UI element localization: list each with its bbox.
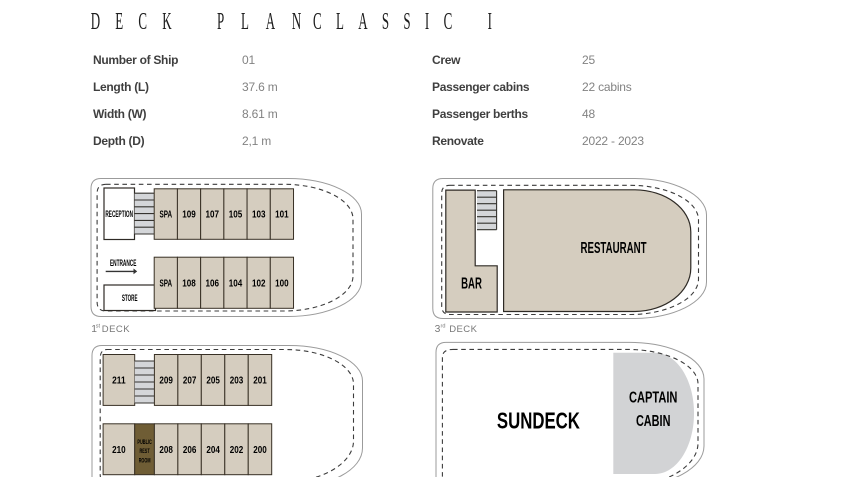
svg-text:37.6 m: 37.6 m — [242, 80, 278, 94]
svg-text:101: 101 — [275, 210, 289, 221]
svg-text:108: 108 — [182, 278, 196, 289]
svg-text:208: 208 — [159, 445, 173, 456]
svg-text:25: 25 — [582, 53, 595, 67]
svg-text:SUNDECK: SUNDECK — [497, 408, 580, 434]
svg-text:106: 106 — [206, 278, 220, 289]
svg-text:8.61 m: 8.61 m — [242, 107, 278, 121]
svg-text:I: I — [488, 9, 492, 35]
svg-text:48: 48 — [582, 107, 595, 121]
svg-text:200: 200 — [253, 445, 267, 456]
svg-text:Crew: Crew — [432, 53, 461, 67]
svg-text:Passenger berths: Passenger berths — [432, 107, 529, 121]
svg-text:ROOM: ROOM — [139, 459, 151, 465]
svg-text:201: 201 — [253, 376, 267, 387]
svg-text:206: 206 — [183, 445, 197, 456]
svg-text:105: 105 — [229, 210, 243, 221]
svg-text:CLASSIC: CLASSIC — [313, 9, 467, 35]
svg-text:203: 203 — [230, 376, 244, 387]
svg-text:209: 209 — [159, 376, 173, 387]
svg-text:205: 205 — [206, 376, 220, 387]
svg-text:204: 204 — [206, 445, 220, 456]
svg-text:202: 202 — [230, 445, 244, 456]
svg-text:103: 103 — [252, 210, 266, 221]
svg-text:rd: rd — [441, 323, 446, 329]
svg-text:100: 100 — [275, 278, 289, 289]
svg-text:DECK: DECK — [449, 324, 477, 335]
svg-text:PUBLIC: PUBLIC — [137, 440, 152, 446]
svg-text:SPA: SPA — [160, 278, 173, 289]
svg-text:DECK: DECK — [102, 324, 130, 335]
svg-text:211: 211 — [112, 376, 126, 387]
svg-text:CABIN: CABIN — [636, 413, 671, 430]
svg-text:CAPTAIN: CAPTAIN — [629, 390, 677, 407]
svg-text:210: 210 — [112, 445, 126, 456]
svg-text:104: 104 — [229, 278, 243, 289]
svg-text:Length (L): Length (L) — [93, 80, 149, 94]
svg-text:st: st — [96, 323, 101, 329]
svg-text:Depth (D): Depth (D) — [93, 134, 145, 148]
svg-text:102: 102 — [252, 278, 266, 289]
svg-text:Number of Ship: Number of Ship — [93, 53, 178, 67]
svg-text:RESTAURANT: RESTAURANT — [581, 240, 647, 257]
svg-text:Renovate: Renovate — [432, 134, 484, 148]
svg-text:STORE: STORE — [122, 293, 138, 303]
svg-text:Passenger cabins: Passenger cabins — [432, 80, 530, 94]
svg-text:RECEPTION: RECEPTION — [105, 209, 133, 219]
svg-text:DECK: DECK — [91, 9, 187, 35]
svg-text:109: 109 — [182, 210, 196, 221]
svg-text:ENTRANCE: ENTRANCE — [110, 258, 136, 268]
svg-text:Width (W): Width (W) — [93, 107, 146, 121]
svg-text:SPA: SPA — [160, 210, 173, 221]
svg-text:107: 107 — [206, 210, 220, 221]
svg-text:22 cabins: 22 cabins — [582, 80, 632, 94]
svg-text:REST: REST — [140, 449, 150, 455]
svg-text:01: 01 — [242, 53, 255, 67]
svg-text:BAR: BAR — [461, 275, 482, 292]
svg-text:PLAN: PLAN — [217, 9, 318, 35]
svg-text:2,1 m: 2,1 m — [242, 134, 271, 148]
svg-text:207: 207 — [183, 376, 197, 387]
svg-text:2022 - 2023: 2022 - 2023 — [582, 134, 644, 148]
